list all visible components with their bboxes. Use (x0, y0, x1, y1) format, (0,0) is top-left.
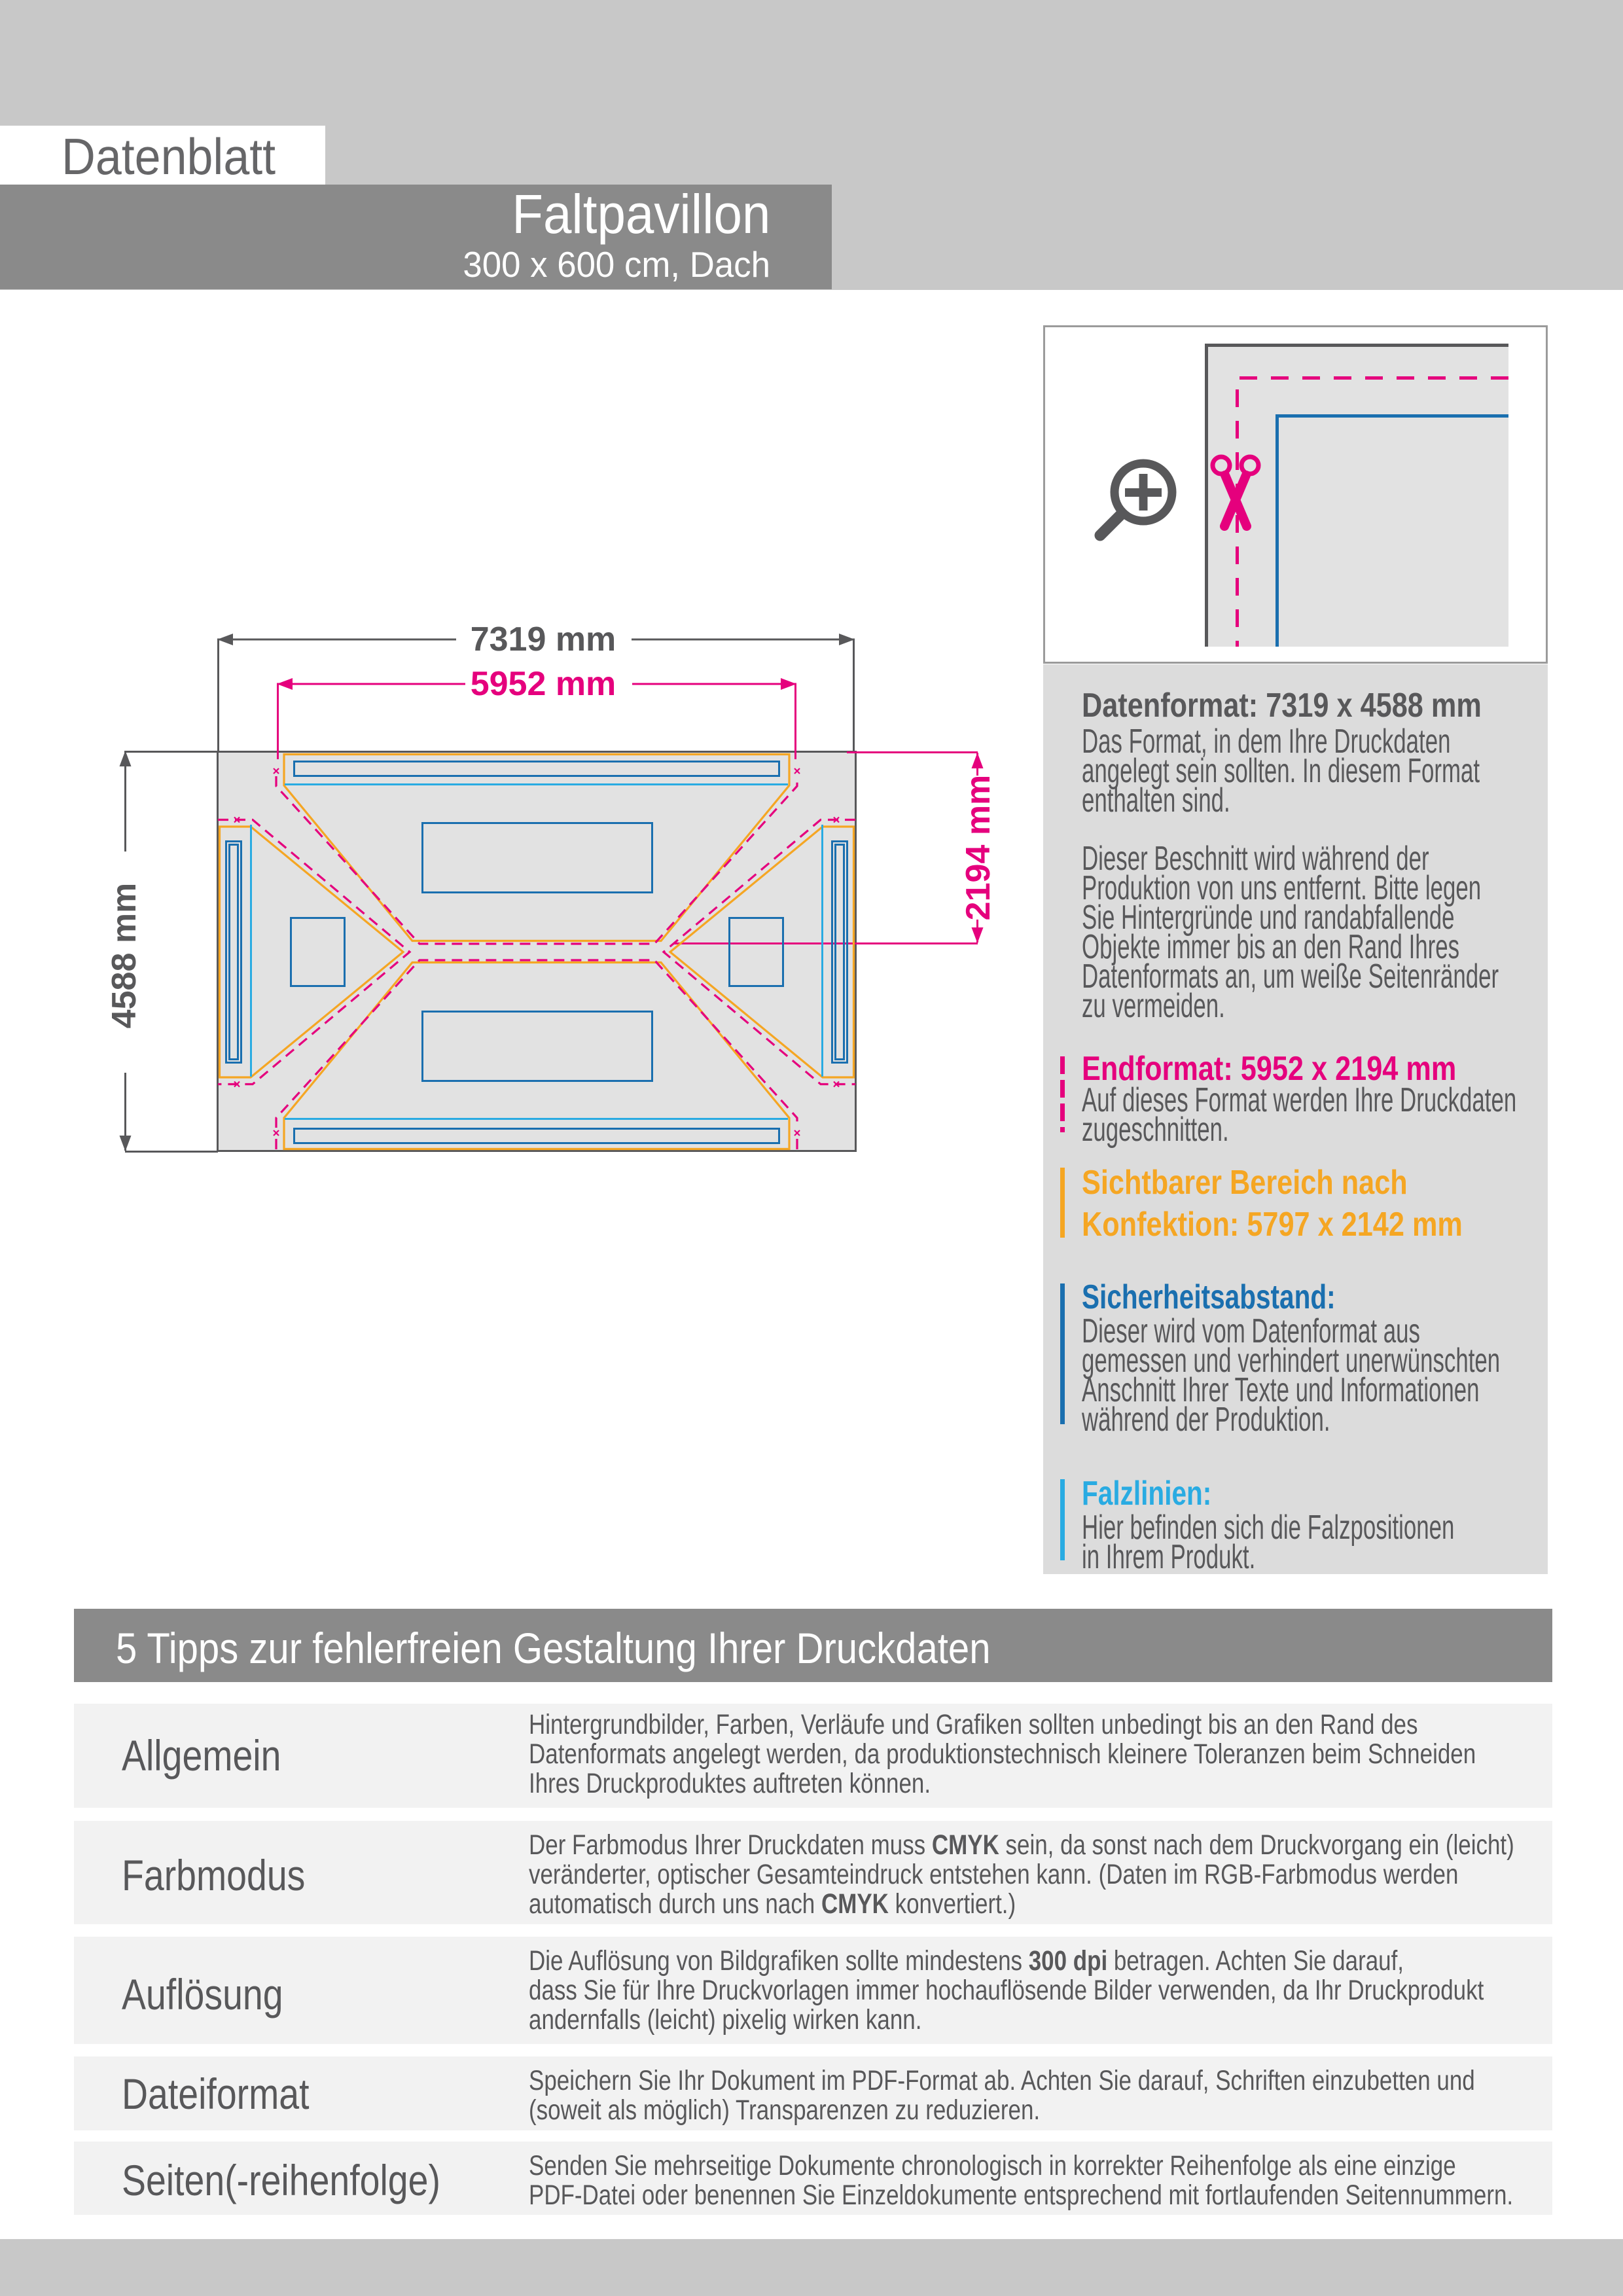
svg-text:2194 mm: 2194 mm (959, 775, 997, 921)
svg-text:4588 mm: 4588 mm (105, 883, 143, 1029)
svg-text:5952 mm: 5952 mm (471, 665, 616, 703)
svg-text:7319 mm: 7319 mm (471, 620, 616, 658)
